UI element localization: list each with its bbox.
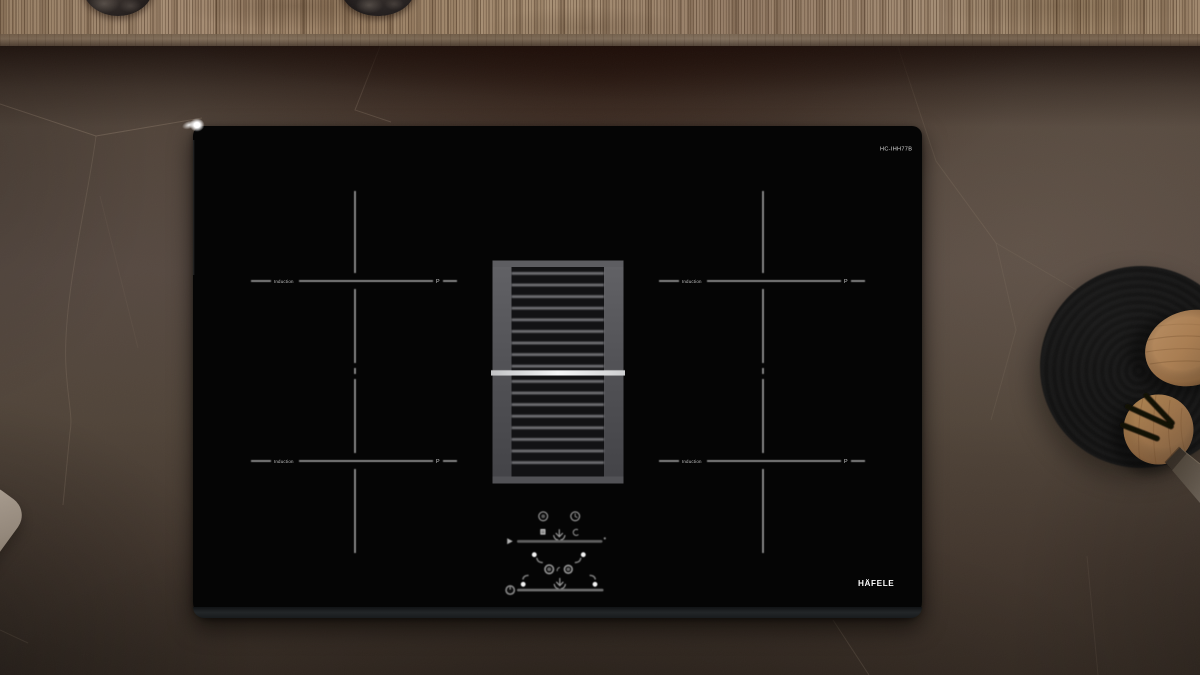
svg-text:P: P bbox=[436, 459, 440, 465]
svg-text:Induction: Induction bbox=[274, 279, 294, 284]
svg-text:Induction: Induction bbox=[682, 279, 702, 284]
svg-text:HC-IHH77B: HC-IHH77B bbox=[880, 147, 912, 153]
svg-text:HÄFELE: HÄFELE bbox=[858, 578, 894, 588]
svg-text:P: P bbox=[844, 279, 848, 285]
svg-text:P: P bbox=[844, 459, 848, 465]
svg-text:Induction: Induction bbox=[274, 459, 294, 464]
svg-text:Induction: Induction bbox=[682, 459, 702, 464]
svg-text:P: P bbox=[436, 279, 440, 285]
